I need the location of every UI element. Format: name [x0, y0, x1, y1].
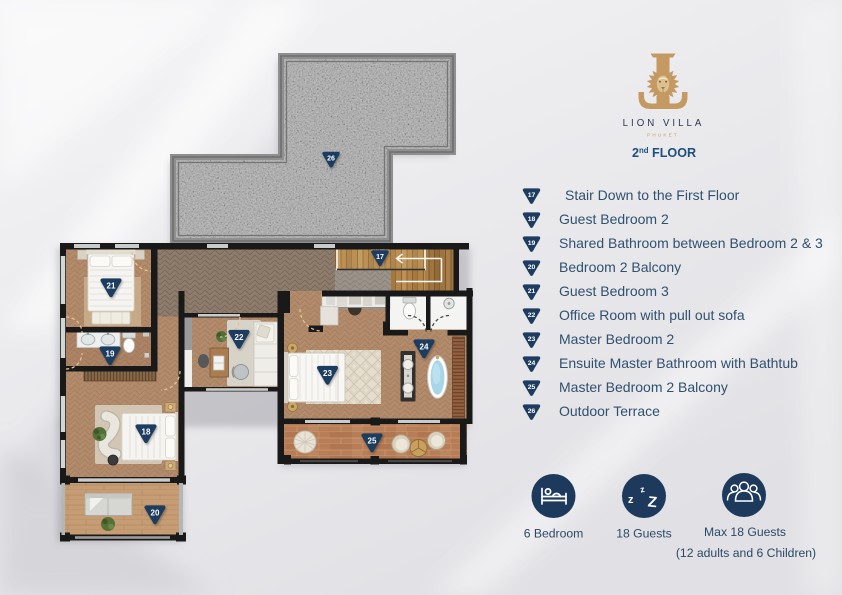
svg-text:Office Room with pull out sofa: Office Room with pull out sofa: [559, 307, 745, 323]
svg-text:Max 18 Guests: Max 18 Guests: [704, 525, 786, 539]
svg-text:18 Guests: 18 Guests: [616, 527, 672, 541]
svg-text:20: 20: [151, 509, 160, 518]
svg-text:PHUKET: PHUKET: [647, 133, 679, 138]
svg-text:21: 21: [528, 288, 536, 295]
svg-text:Guest Bedroom 3: Guest Bedroom 3: [559, 283, 669, 299]
svg-text:6 Bedroom: 6 Bedroom: [524, 527, 584, 541]
svg-text:Master Bedroom 2 Balcony: Master Bedroom 2 Balcony: [559, 379, 728, 395]
svg-text:19: 19: [106, 350, 115, 359]
svg-text:24: 24: [528, 360, 536, 367]
svg-text:25: 25: [368, 437, 377, 446]
svg-text:25: 25: [528, 384, 536, 391]
svg-text:z: z: [628, 494, 634, 506]
svg-text:Guest Bedroom 2: Guest Bedroom 2: [559, 211, 669, 227]
svg-text:26: 26: [327, 156, 335, 163]
svg-text:23: 23: [528, 336, 536, 343]
svg-text:18: 18: [528, 216, 536, 223]
svg-text:20: 20: [528, 264, 536, 271]
svg-text:Stair Down to the First Floor: Stair Down to the First Floor: [565, 187, 740, 203]
svg-text:22: 22: [235, 333, 244, 342]
svg-text:17: 17: [376, 254, 384, 261]
svg-text:24: 24: [420, 343, 429, 352]
svg-text:LION VILLA: LION VILLA: [623, 118, 705, 129]
svg-text:Shared Bathroom between Bedroo: Shared Bathroom between Bedroom 2 & 3: [559, 235, 823, 251]
svg-text:Bedroom 2 Balcony: Bedroom 2 Balcony: [559, 259, 681, 275]
svg-text:21: 21: [107, 282, 116, 291]
svg-text:Master Bedroom 2: Master Bedroom 2: [559, 331, 674, 347]
svg-text:(12 adults and 6 Children): (12 adults and 6 Children): [676, 546, 816, 560]
svg-text:Z: Z: [647, 493, 658, 511]
svg-text:18: 18: [142, 428, 151, 437]
svg-text:Outdoor Terrace: Outdoor Terrace: [559, 403, 660, 419]
svg-text:Ensuite Master Bathroom with B: Ensuite Master Bathroom with Bathtub: [559, 355, 798, 371]
svg-text:23: 23: [323, 369, 332, 378]
svg-text:17: 17: [528, 192, 536, 199]
svg-text:26: 26: [528, 408, 536, 415]
svg-text:22: 22: [528, 312, 536, 319]
svg-text:19: 19: [528, 240, 536, 247]
